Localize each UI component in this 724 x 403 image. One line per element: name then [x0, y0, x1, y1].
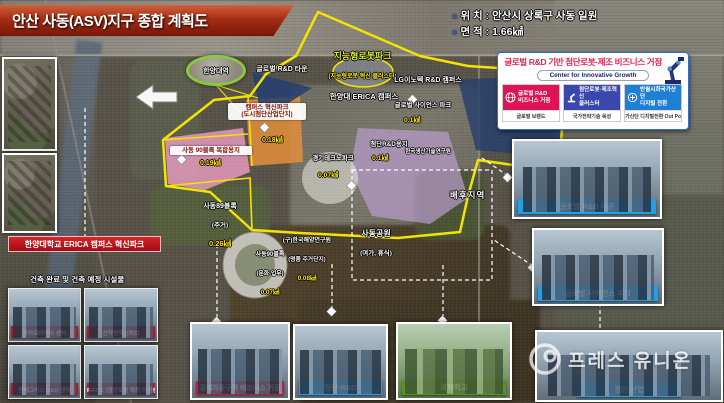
label-hinterland: 배후지역	[450, 189, 485, 201]
value-advanced-rnd: 0.1㎢	[372, 152, 388, 162]
label-global-science-park: 글로벌 사이언스 파크	[386, 102, 460, 110]
label-campus-innovation-park: 캠퍼스 혁신파크 (도시첨단산업단지)	[228, 103, 306, 120]
strategy-card: 반월시화국가산단디지털 전환 국가산단 디지털전환 Out Post	[624, 84, 682, 122]
label-kitech: 한국생산기술연구원	[396, 149, 460, 156]
photo-biz-hub: 경제자유구역 비즈니스 거점	[190, 322, 290, 400]
erica-innovation-park-banner: 한양대학교 ERICA 캠퍼스 혁신파크	[8, 236, 161, 252]
value-campus-park: 0.18㎢	[262, 135, 283, 145]
label-sadong-park: 사동공원 (여가, 휴식)	[348, 222, 404, 260]
left-aerial-photo-bottom	[2, 153, 57, 233]
facility-label: 카카오데이터 센터	[11, 326, 78, 338]
photo-global-rnd-town: 글로벌 R&D 타운	[512, 139, 662, 219]
facilities-section-title: 건축 완료 및 건축 예정 시설물	[30, 274, 124, 285]
facility-photo: RATIC (첨단로봇 특화 지원센터)	[84, 345, 158, 399]
watermark-text: 프레스 유니온	[568, 346, 692, 373]
facility-label: RATIC (첨단로봇 특화 지원센터)	[87, 383, 155, 395]
label-global-rnd-town: 글로벌 R&D 타운	[238, 66, 326, 74]
label-technopark: 경기테크노파크	[303, 155, 363, 163]
left-aerial-photo-top	[2, 57, 57, 151]
card-footer: 국가산단 디지털전환 Out Post	[625, 110, 681, 121]
robot-arm-icon	[566, 92, 577, 103]
digital-icon	[627, 92, 638, 103]
photo-label: 첨단 산업	[577, 382, 681, 397]
card-footer: 글로벌 브랜드	[503, 110, 559, 121]
label-hanyang-erica: 한양대 ERICA 캠퍼스	[308, 92, 420, 101]
photo-label: 경제자유구역 비즈니스 거점	[196, 381, 284, 395]
photo-label: 글로벌 사이언스 파크	[538, 286, 658, 301]
globe-icon	[505, 92, 516, 103]
strategy-subtitle: Center for Innovative Growth	[537, 70, 649, 81]
strategy-card: 첨단로봇·제조혁신클러스터 국가전략기술 육성	[563, 84, 621, 122]
label-lg-innotek: LG이노텍 R&D 캠퍼스	[378, 77, 478, 85]
photo-label: 글로벌 R&D 타운	[518, 199, 656, 214]
press-union-watermark: 프레스 유니온	[528, 342, 692, 376]
left-arrow-icon	[136, 84, 178, 110]
value-technopark: 0.07㎢	[318, 169, 338, 179]
photo-label: 국제학교	[402, 380, 506, 395]
info-area: ●면 적 : 1.66㎢	[452, 24, 597, 40]
press-union-logo-icon	[528, 342, 562, 376]
facility-photo-grid: 카카오데이터 센터 산학연혁신허브 엔테그리스 R&D 센터 RATIC (첨단…	[8, 288, 161, 399]
value-global-science-park: 0.1㎢	[404, 114, 420, 124]
hanyangdae-station-marker: 한양대역	[186, 55, 246, 86]
plan-map-image: 지능형로봇파크 (지능형로봇 혁신 클러스터) 글로벌 R&D 타운 LG이노텍…	[0, 0, 724, 403]
label-sadong90-mixed: 사동 90블록 복합용지	[170, 146, 252, 155]
value-sadong90-mixed: 0.19㎢	[200, 158, 221, 168]
label-sadong90-culture: 사동90블록 (문화·업무) 0.07㎢	[245, 242, 295, 300]
card-footer: 국가전략기술 육성	[564, 110, 620, 121]
facility-photo: 카카오데이터 센터	[8, 288, 81, 342]
strategy-panel: 글로벌 R&D 기반 첨단로봇·제조 비즈니스 거점 Center for In…	[497, 52, 689, 130]
facility-label: 산학연혁신허브	[87, 326, 155, 338]
photo-label: 첨단 R&D	[299, 380, 382, 395]
strategy-cards: 글로벌 R&D비즈니스 거점 글로벌 브랜드 첨단로봇·제조혁신클러스터 국가전…	[502, 84, 684, 122]
strategy-card: 글로벌 R&D비즈니스 거점 글로벌 브랜드	[502, 84, 560, 122]
strategy-title: 글로벌 R&D 기반 첨단로봇·제조 비즈니스 거점	[502, 56, 684, 68]
site-info: ●위 치 : 안산시 상록구 사동 일원 ●면 적 : 1.66㎢	[452, 8, 597, 41]
robot-arm-illustration	[661, 55, 685, 85]
label-advanced-rnd: 첨단R&D용지	[358, 141, 420, 149]
facility-photo: 엔테그리스 R&D 센터	[8, 345, 81, 399]
photo-international-school: 국제학교	[396, 322, 512, 400]
info-location: ●위 치 : 안산시 상록구 사동 일원	[452, 8, 597, 24]
facility-photo: 산학연혁신허브	[84, 288, 158, 342]
photo-advanced-rnd: 첨단 R&D	[293, 324, 388, 400]
facility-label: 엔테그리스 R&D 센터	[11, 383, 78, 395]
page-title: 안산 사동(ASV)지구 종합 계획도	[0, 5, 294, 36]
photo-global-science-park: 글로벌 사이언스 파크	[532, 228, 664, 306]
